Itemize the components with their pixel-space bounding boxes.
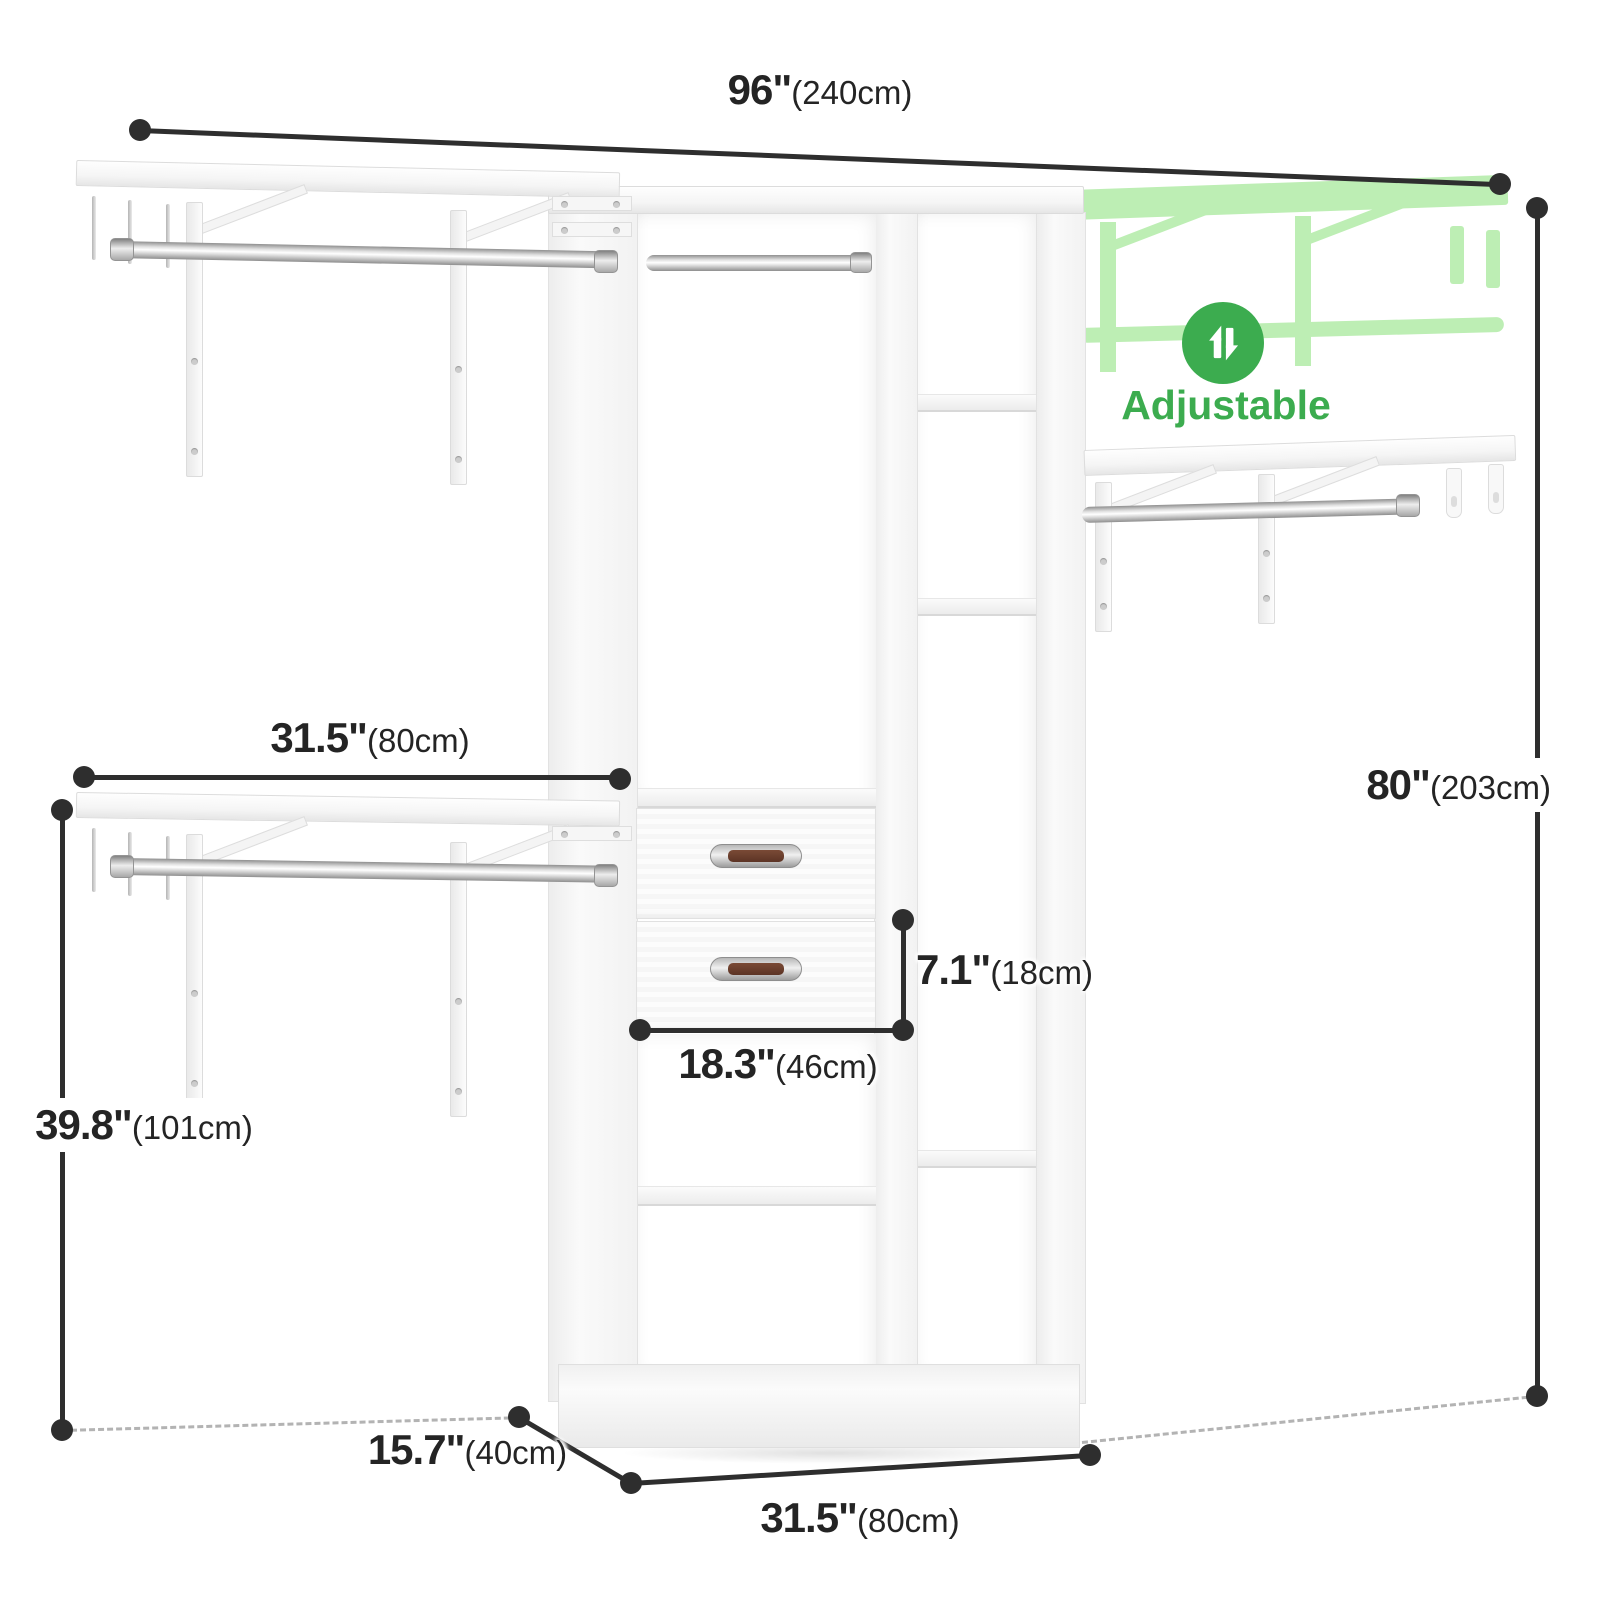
- dim-overall-height-label: 80"(203cm): [1345, 758, 1557, 812]
- rod-end-cap: [110, 238, 134, 261]
- screw: [1100, 603, 1107, 610]
- tower-cubby-left-shelf: [638, 1186, 876, 1206]
- screw: [191, 448, 198, 455]
- dim-endpoint: [1079, 1444, 1101, 1466]
- adjustable-label: Adjustable: [1106, 382, 1346, 429]
- tower-right-panel: [1036, 212, 1086, 1404]
- dim-value: 96": [728, 66, 792, 113]
- dim-tower-depth-label: 15.7"(40cm): [345, 1426, 590, 1474]
- dim-metric: (46cm): [775, 1048, 878, 1085]
- dim-endpoint: [892, 1019, 914, 1041]
- closet-dimension-diagram: Adjustable: [0, 0, 1600, 1600]
- dim-drawer-height-label: 7.1"(18cm): [916, 946, 1093, 994]
- tower-middle-divider: [874, 212, 918, 1402]
- floor-reference-line: [1082, 1395, 1537, 1444]
- ghost-hanging-rod: [1080, 317, 1504, 343]
- shelf-column-shelf-1: [918, 394, 1036, 412]
- dim-tower-width-label: 31.5"(80cm): [690, 1494, 1030, 1542]
- top-left-shelf-board: [76, 160, 620, 198]
- mounting-plate: [552, 826, 632, 841]
- up-down-arrows-icon: [1194, 314, 1252, 372]
- screw: [455, 998, 462, 1005]
- dim-drawer-height-line: [901, 920, 906, 1032]
- mounting-plate: [552, 222, 632, 237]
- dim-metric: (18cm): [990, 954, 1093, 991]
- tower-rod-end-cap: [850, 252, 872, 273]
- bracket-bar: [450, 842, 467, 1117]
- hook-tab: [1446, 468, 1462, 518]
- dim-drawer-width-line: [640, 1028, 905, 1033]
- dim-metric: (203cm): [1430, 769, 1551, 806]
- shelf-bracket: [1258, 470, 1398, 650]
- screw: [455, 456, 462, 463]
- dim-metric: (101cm): [132, 1109, 253, 1146]
- dim-value: 80": [1366, 761, 1430, 808]
- dim-endpoint: [51, 799, 73, 821]
- dim-endpoint: [629, 1019, 651, 1041]
- dim-endpoint: [1489, 173, 1511, 195]
- drawer-upper-handle: [710, 844, 802, 868]
- dim-side-shelf-height-label: 39.8"(101cm): [24, 1098, 264, 1152]
- dim-endpoint: [1526, 197, 1548, 219]
- screw: [561, 201, 568, 208]
- adjustable-badge: [1182, 302, 1264, 384]
- screw: [191, 358, 198, 365]
- screw: [613, 831, 620, 838]
- hanging-pin-hook: [92, 196, 96, 260]
- dim-endpoint: [129, 119, 151, 141]
- dim-endpoint: [508, 1406, 530, 1428]
- drawer-lower-handle: [710, 957, 802, 981]
- dim-endpoint: [73, 766, 95, 788]
- dim-metric: (240cm): [791, 74, 912, 111]
- dim-value: 31.5": [760, 1494, 857, 1541]
- dim-endpoint: [1526, 1385, 1548, 1407]
- rod-end-cap: [1396, 494, 1420, 517]
- screw: [191, 1080, 198, 1087]
- dim-metric: (40cm): [464, 1434, 567, 1471]
- dim-endpoint: [51, 1419, 73, 1441]
- screw: [455, 366, 462, 373]
- ghost-hook-tab: [1450, 226, 1464, 284]
- dim-value: 15.7": [368, 1426, 465, 1473]
- screw: [1263, 550, 1270, 557]
- dim-value: 7.1": [916, 946, 990, 993]
- mounting-plate: [552, 196, 632, 211]
- shelf-column-shelf-2: [918, 598, 1036, 616]
- tower-hanging-rod: [646, 255, 871, 271]
- bracket-arm: [194, 184, 308, 236]
- dim-endpoint: [609, 768, 631, 790]
- hanging-pin-hook: [92, 828, 96, 892]
- dim-side-shelf-width-line: [84, 775, 620, 780]
- rod-end-cap: [594, 250, 618, 273]
- drawer-top-shelf: [638, 788, 876, 808]
- rod-end-cap: [594, 864, 618, 887]
- tower-base: [558, 1364, 1080, 1448]
- screw: [613, 201, 620, 208]
- rod-end-cap: [110, 855, 134, 878]
- dim-endpoint: [620, 1472, 642, 1494]
- dim-endpoint: [892, 909, 914, 931]
- tower-hanging-opening: [638, 214, 876, 788]
- screw: [1263, 595, 1270, 602]
- lower-left-shelf-board: [76, 792, 620, 827]
- hook-tab: [1488, 464, 1504, 514]
- screw: [191, 990, 198, 997]
- screw: [561, 831, 568, 838]
- dim-drawer-width-label: 18.3"(46cm): [628, 1040, 928, 1088]
- dim-metric: (80cm): [857, 1502, 960, 1539]
- ghost-hook-tab: [1486, 230, 1500, 288]
- screw: [1100, 558, 1107, 565]
- screw: [561, 227, 568, 234]
- dim-value: 31.5": [270, 714, 367, 761]
- dim-side-shelf-width-label: 31.5"(80cm): [180, 714, 560, 762]
- dim-value: 39.8": [35, 1101, 132, 1148]
- dim-overall-width-label: 96"(240cm): [620, 66, 1020, 114]
- dim-value: 18.3": [678, 1040, 775, 1087]
- tower-shelf-column: [918, 212, 1036, 1364]
- screw: [455, 1088, 462, 1095]
- shelf-column-shelf-3: [918, 1150, 1036, 1168]
- dim-metric: (80cm): [367, 722, 470, 759]
- shelf-bracket: [450, 838, 590, 1138]
- screw: [613, 227, 620, 234]
